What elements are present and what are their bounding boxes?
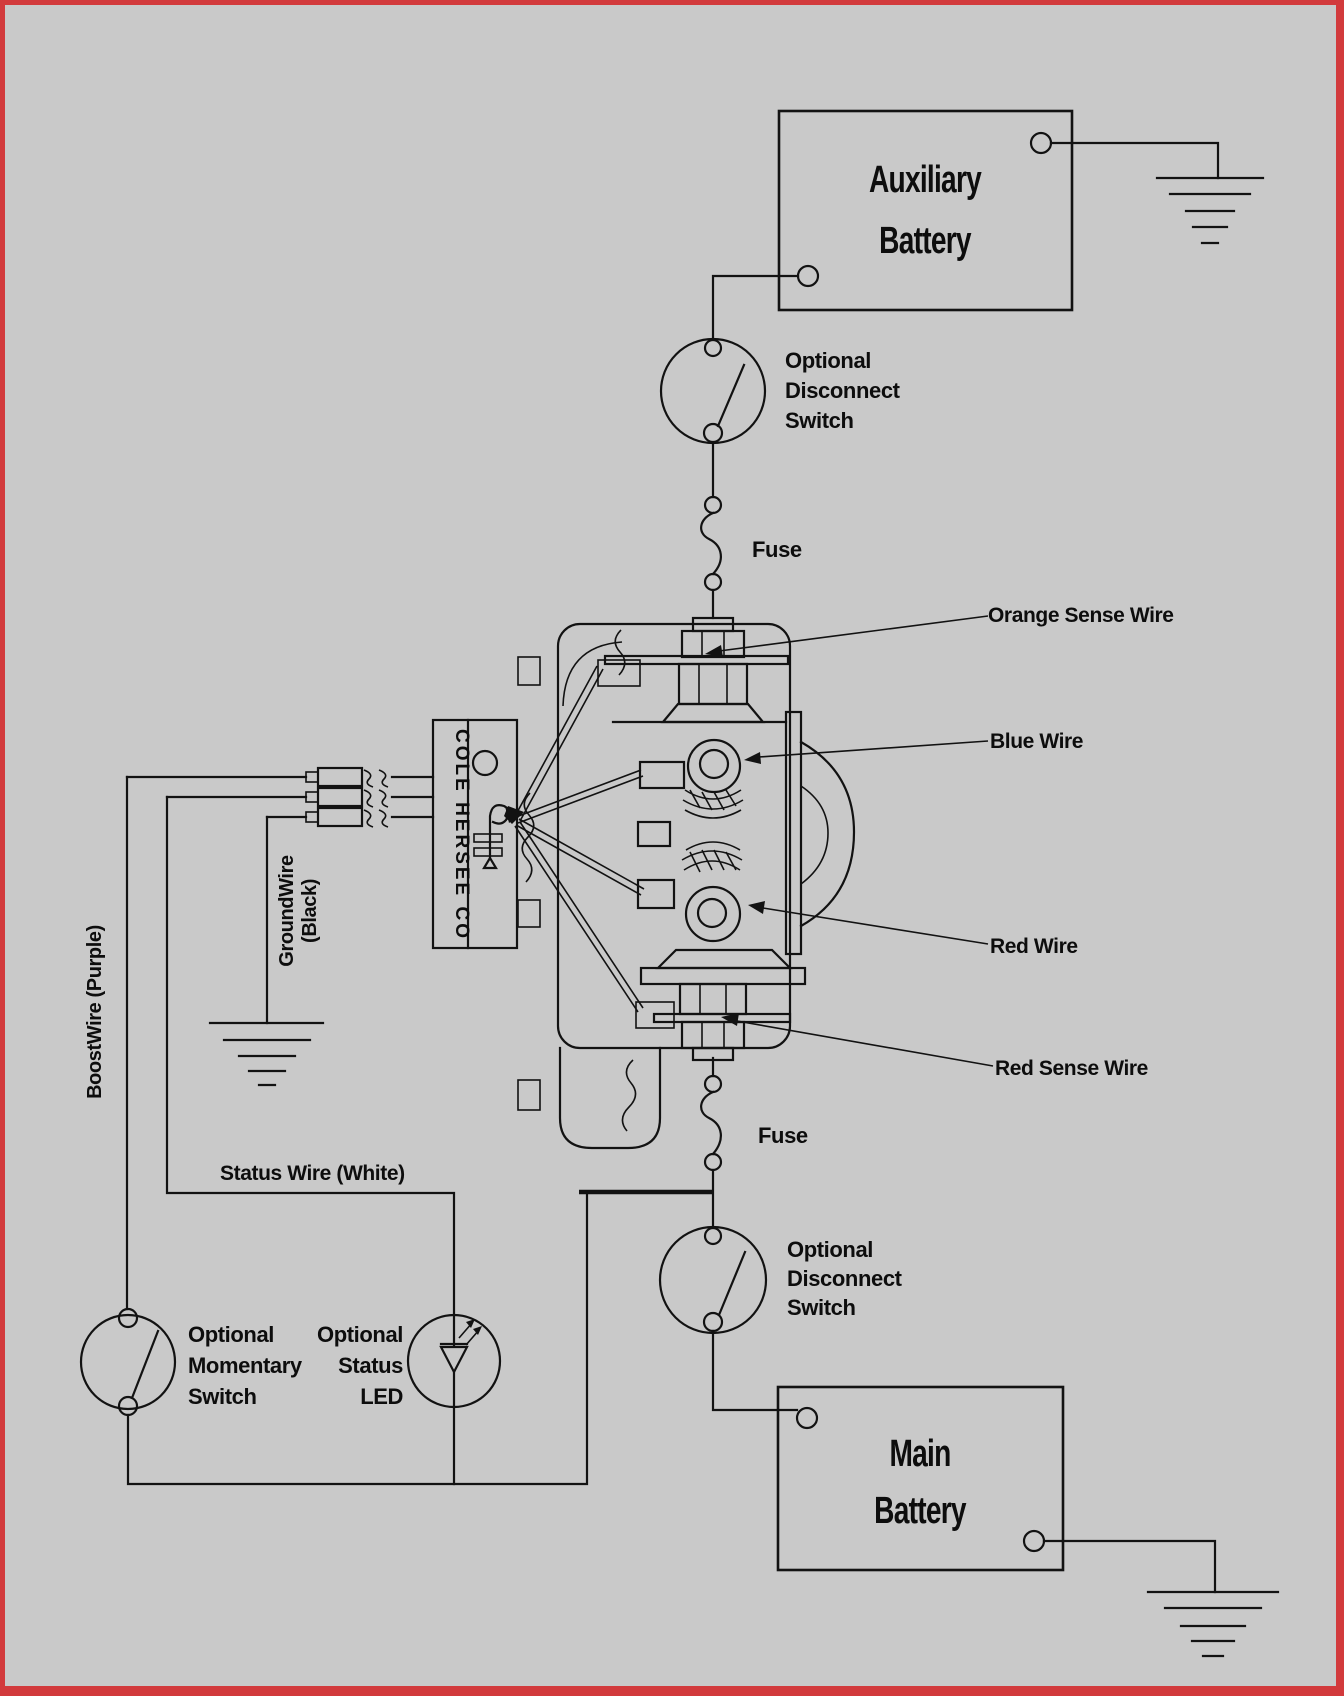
status-led-label-1: Optional [317,1322,403,1347]
diagram-background [0,0,1344,1696]
status-led-label-3: LED [360,1384,403,1409]
diagram-canvas: Auxiliary Battery Main Battery Optional … [0,0,1344,1696]
orange-sense-wire-label: Orange Sense Wire [988,604,1174,627]
momentary-label-2: Momentary [188,1353,303,1378]
main-battery-label-2: Battery [874,1490,967,1532]
relay-brand-text: COLE HERSEE CO [451,729,472,941]
upper-fuse-label: Fuse [752,537,802,562]
red-sense-wire-label: Red Sense Wire [995,1057,1148,1080]
ground-wire-label-2: (Black) [299,879,321,943]
status-wire-label: Status Wire (White) [220,1162,405,1185]
upper-disconnect-label-1: Optional [785,348,871,373]
red-wire-label: Red Wire [990,935,1078,958]
lower-disconnect-label-1: Optional [787,1237,873,1262]
ground-wire-label-1: GroundWire [276,855,298,967]
lower-disconnect-label-3: Switch [787,1295,856,1320]
main-battery-label-1: Main [889,1433,950,1475]
aux-battery-label-2: Battery [879,220,972,262]
aux-battery-label-1: Auxiliary [869,159,982,201]
momentary-label-1: Optional [188,1322,274,1347]
lower-disconnect-label-2: Disconnect [787,1266,903,1291]
boost-wire-label: BoostWire (Purple) [84,925,106,1099]
blue-wire-label: Blue Wire [990,730,1083,753]
upper-disconnect-label-2: Disconnect [785,378,901,403]
upper-disconnect-label-3: Switch [785,408,854,433]
wiring-diagram: Auxiliary Battery Main Battery Optional … [0,0,1344,1696]
momentary-label-3: Switch [188,1384,257,1409]
lower-fuse-label: Fuse [758,1123,808,1148]
status-led-label-2: Status [338,1353,403,1378]
